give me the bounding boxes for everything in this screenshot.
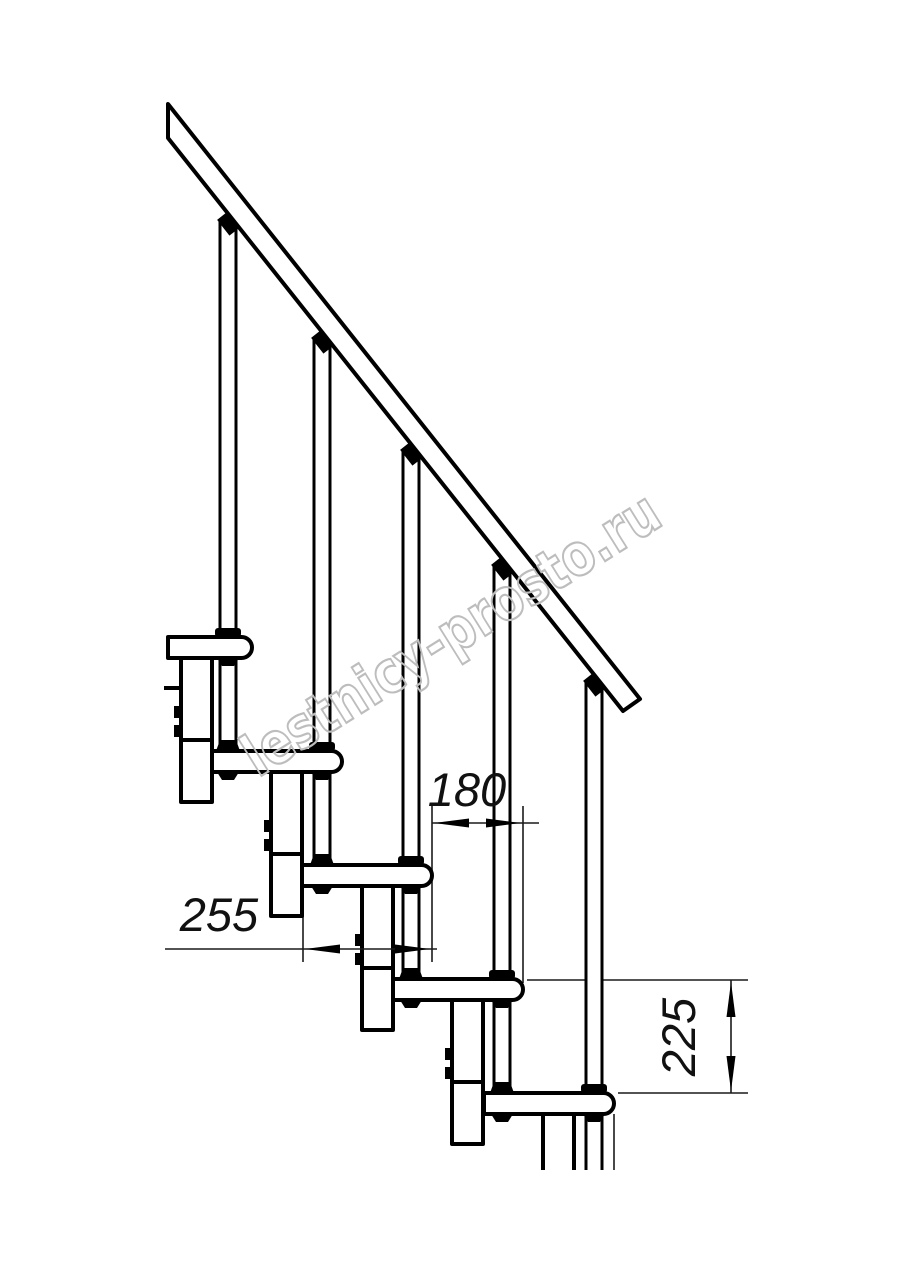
watermark-text: lestnicy-prosto.ru [229, 478, 672, 790]
arrow-left-icon [434, 819, 469, 828]
nut-icon [491, 1114, 513, 1122]
arrow-down-icon [727, 1056, 736, 1091]
tread-1 [168, 637, 252, 658]
tab-icon [355, 934, 364, 946]
tab-icon [174, 706, 183, 718]
column-4 [452, 1000, 483, 1144]
tread-4 [393, 979, 523, 1000]
column-1 [181, 658, 212, 802]
tread-5 [484, 1093, 614, 1114]
tab-icon [174, 725, 183, 737]
dim-label-step-rise: 225 [652, 997, 705, 1077]
tab-icon [445, 1048, 454, 1060]
foot-icon [310, 854, 334, 865]
tab-icon [264, 839, 273, 851]
nut-icon [217, 772, 239, 780]
tread-3 [302, 865, 432, 886]
clamp-icon [581, 1084, 607, 1093]
arrow-left-icon [305, 945, 340, 954]
drawing-canvas: lestnicy-prosto.ru 180 255 225 [0, 0, 914, 1280]
nut-icon [400, 1000, 422, 1008]
clamp-icon [489, 970, 515, 979]
foot-icon [399, 968, 423, 979]
tab-icon [445, 1067, 454, 1079]
tab-icon [264, 820, 273, 832]
dim-label-tread-depth: 255 [179, 888, 259, 941]
baluster-1 [220, 220, 236, 637]
baluster-3-lower [403, 886, 419, 979]
baluster-5 [586, 681, 602, 1093]
arrow-up-icon [727, 982, 736, 1017]
clamp-icon [215, 628, 241, 637]
tab-icon [355, 953, 364, 965]
baluster-2-lower [314, 772, 330, 865]
staircase-drawing: lestnicy-prosto.ru 180 255 225 [0, 0, 914, 1280]
baluster-4-lower [494, 1000, 510, 1093]
dim-label-step-run: 180 [428, 763, 506, 816]
column-2 [271, 772, 302, 916]
clamp-icon [398, 856, 424, 865]
dimension-step-rise: 225 [652, 980, 736, 1093]
foot-icon [490, 1082, 514, 1093]
column-3 [362, 886, 393, 1030]
nut-icon [311, 886, 333, 894]
